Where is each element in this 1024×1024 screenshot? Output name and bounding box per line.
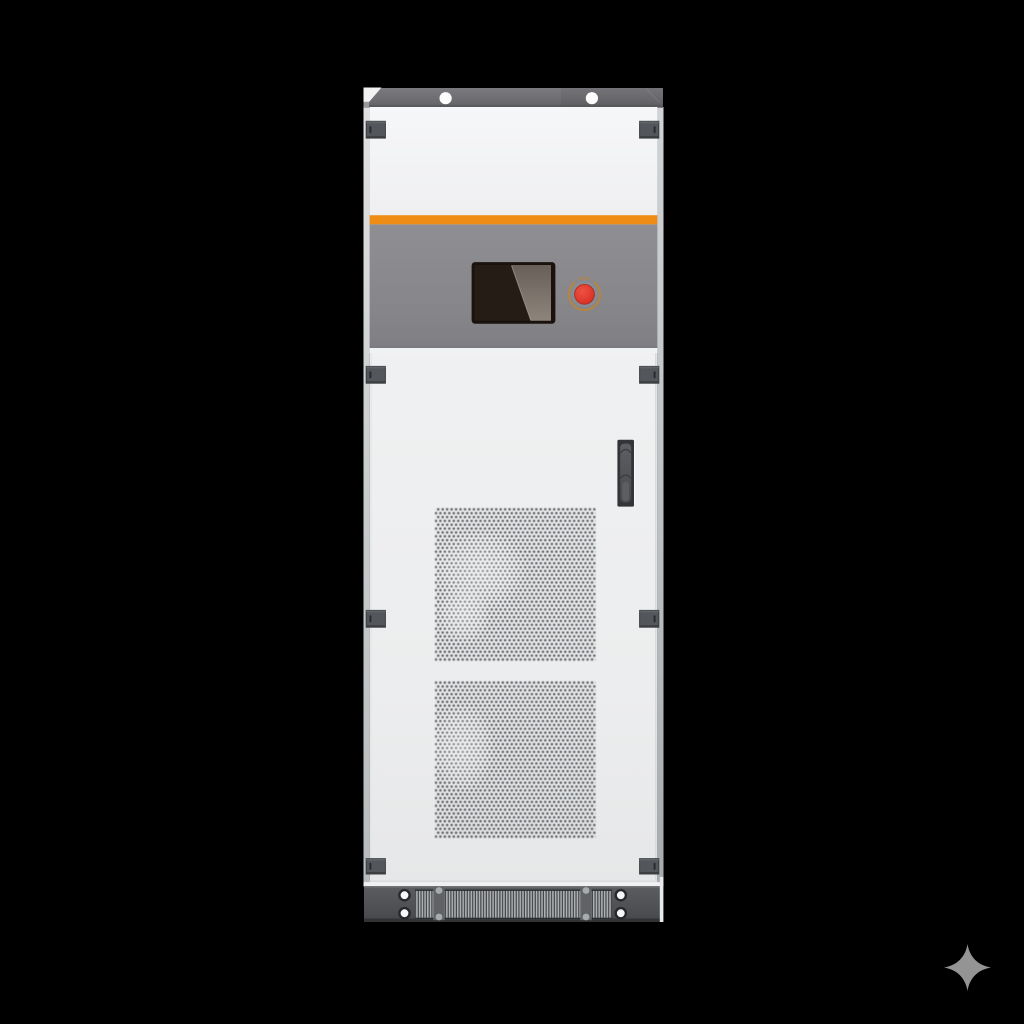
svg-text:EPO: EPO (579, 276, 590, 282)
